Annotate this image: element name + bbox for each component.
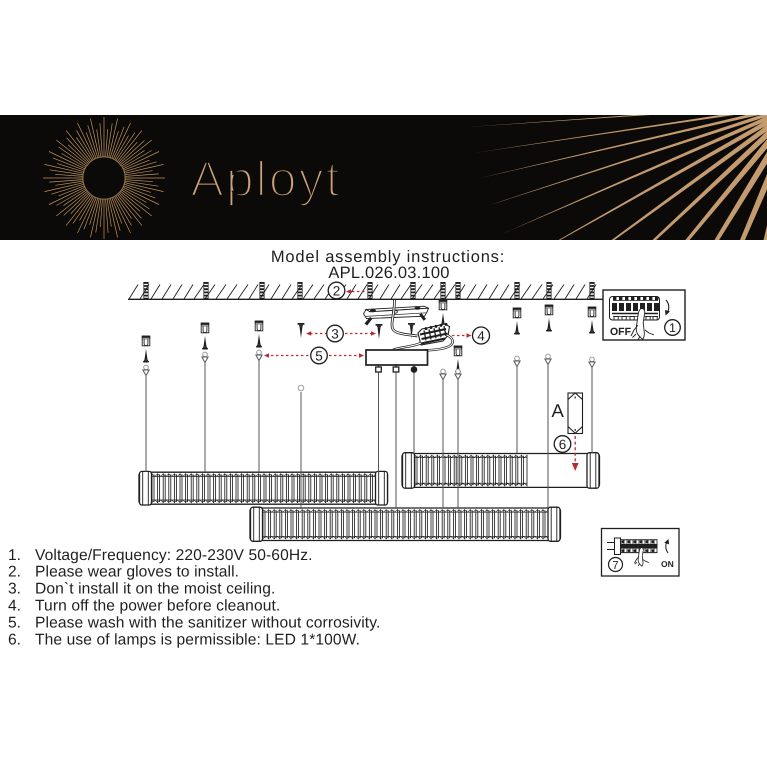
svg-text:Aployt: Aployt — [191, 151, 342, 207]
svg-text:2: 2 — [333, 284, 341, 299]
svg-text:OFF: OFF — [610, 326, 632, 338]
svg-text:1.: 1. — [8, 547, 21, 564]
svg-text:4.: 4. — [8, 598, 21, 615]
svg-text:Please wash with the sanitizer: Please wash with the sanitizer without c… — [35, 614, 380, 631]
svg-text:6.: 6. — [8, 631, 21, 648]
svg-text:5: 5 — [315, 349, 323, 364]
svg-text:3: 3 — [331, 327, 339, 342]
svg-text:A: A — [552, 400, 565, 421]
svg-text:Please wear gloves to install.: Please wear gloves to install. — [35, 564, 239, 581]
svg-text:Turn off the power before clea: Turn off the power before cleanout. — [35, 598, 280, 615]
svg-text:APL.026.03.100: APL.026.03.100 — [328, 264, 449, 282]
svg-text:ON: ON — [661, 559, 674, 569]
svg-text:7: 7 — [612, 560, 618, 572]
svg-text:1: 1 — [669, 321, 676, 335]
svg-text:5.: 5. — [8, 614, 21, 631]
svg-text:The use of lamps is permissibl: The use of lamps is permissible: LED 1*1… — [35, 631, 360, 648]
svg-text:3.: 3. — [8, 581, 21, 598]
svg-text:2.: 2. — [8, 564, 21, 581]
svg-text:4: 4 — [477, 329, 485, 344]
svg-text:Don`t install it on the moist: Don`t install it on the moist ceiling. — [35, 581, 275, 598]
svg-text:Voltage/Frequency: 220-230V 50: Voltage/Frequency: 220-230V 50-60Hz. — [35, 547, 313, 564]
svg-text:6: 6 — [559, 437, 567, 452]
